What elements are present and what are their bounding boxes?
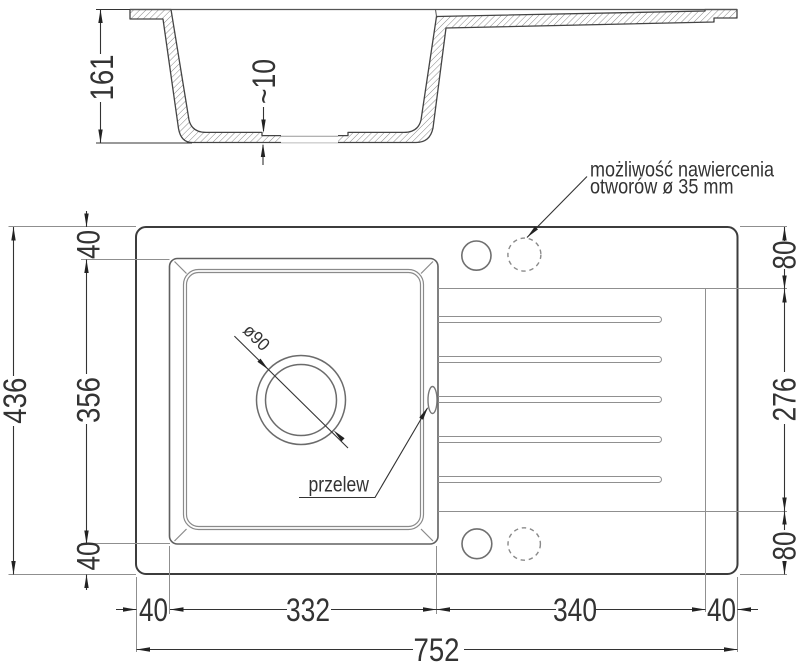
svg-text:40: 40 (71, 230, 107, 259)
svg-text:80: 80 (767, 532, 800, 561)
svg-text:przelew: przelew (309, 474, 370, 497)
svg-text:332: 332 (286, 592, 330, 628)
svg-text:752: 752 (414, 632, 460, 668)
svg-text:161: 161 (84, 55, 120, 101)
svg-text:356: 356 (71, 377, 107, 423)
svg-text:~10: ~10 (246, 59, 282, 104)
svg-text:40: 40 (71, 542, 107, 571)
svg-text:340: 340 (553, 592, 597, 628)
svg-text:otworów ø 35 mm: otworów ø 35 mm (590, 175, 734, 198)
svg-text:80: 80 (767, 241, 800, 270)
svg-text:276: 276 (767, 378, 800, 422)
svg-text:40: 40 (707, 592, 736, 628)
svg-text:40: 40 (139, 592, 168, 628)
svg-text:436: 436 (0, 378, 33, 424)
